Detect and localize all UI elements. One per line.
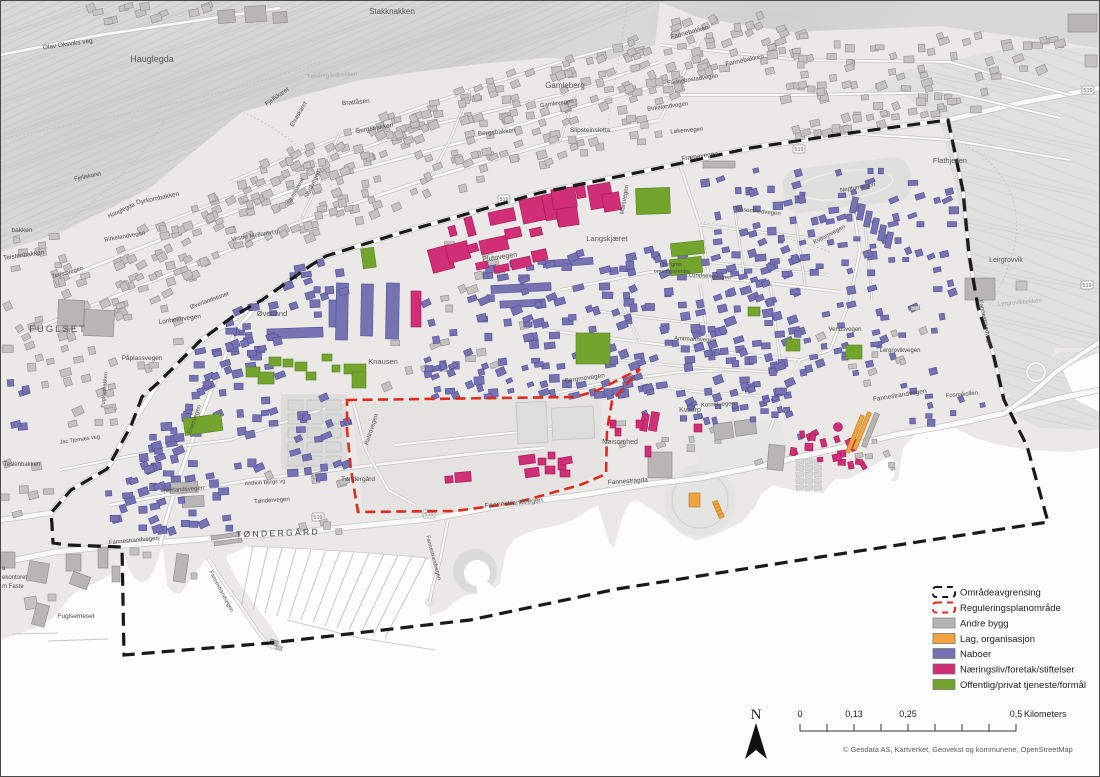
svg-text:Kvitorp: Kvitorp <box>679 407 701 414</box>
svg-text:Kilometers: Kilometers <box>1024 709 1067 719</box>
svg-text:0,25: 0,25 <box>899 709 917 719</box>
svg-text:Bergmo: Bergmo <box>662 262 681 268</box>
svg-text:519: 519 <box>794 147 803 153</box>
svg-text:Gamleberg: Gamleberg <box>545 81 585 90</box>
svg-text:Slipsteinsletta: Slipsteinsletta <box>570 127 610 134</box>
svg-text:Lag, organisasjon: Lag, organisasjon <box>960 634 1035 645</box>
svg-text:FUGLSET: FUGLSET <box>29 324 87 335</box>
svg-text:519: 519 <box>1082 283 1091 289</box>
svg-text:0: 0 <box>797 709 802 719</box>
svg-text:Fuglsetneset: Fuglsetneset <box>57 613 94 620</box>
svg-text:Offentlig/privat tjeneste/form: Offentlig/privat tjeneste/formål <box>960 680 1086 691</box>
svg-text:Naboer: Naboer <box>960 649 991 660</box>
svg-text:m Faste: m Faste <box>2 584 24 590</box>
svg-text:ekontoret: ekontoret <box>2 575 27 581</box>
svg-text:0,5: 0,5 <box>1010 709 1023 719</box>
svg-text:Tøndergård: Tøndergård <box>341 475 375 483</box>
svg-text:Andre bygg: Andre bygg <box>960 618 1009 629</box>
svg-text:Knausen: Knausen <box>368 357 398 366</box>
svg-text:519: 519 <box>1083 88 1092 94</box>
svg-text:Flathjellen: Flathjellen <box>933 156 967 165</box>
svg-text:bakken: bakken <box>12 227 33 234</box>
svg-text:Øverland: Øverland <box>257 309 287 318</box>
svg-text:Leirgrovvik: Leirgrovvik <box>989 257 1023 264</box>
svg-text:Langskjæret: Langskjæret <box>586 234 628 243</box>
svg-text:Påplassvegen: Påplassvegen <box>122 354 163 362</box>
svg-text:Teslenbakken: Teslenbakken <box>4 462 41 468</box>
svg-text:0,13: 0,13 <box>845 709 863 719</box>
svg-text:Næringsliv/foretak/stiftelser: Næringsliv/foretak/stiftelser <box>960 664 1075 675</box>
svg-text:N: N <box>751 707 762 723</box>
svg-text:omsorgssenter: omsorgssenter <box>654 269 691 275</box>
svg-text:© Geodata AS, Kartverket, Geov: © Geodata AS, Kartverket, Geovekst og ko… <box>843 745 1073 754</box>
svg-text:Stakknakken: Stakknakken <box>369 7 415 16</box>
svg-text:Områdeavgrensing: Områdeavgrensing <box>960 587 1041 598</box>
svg-text:Lergrovikvegen: Lergrovikvegen <box>879 348 920 354</box>
svg-text:Reguleringsplanområde: Reguleringsplanområde <box>960 603 1061 614</box>
svg-text:Hauglegda: Hauglegda <box>130 54 174 64</box>
svg-text:Venusvegen: Venusvegen <box>828 327 861 333</box>
svg-text:Nøisomhed: Nøisomhed <box>602 439 638 446</box>
svg-text:519: 519 <box>424 512 433 518</box>
